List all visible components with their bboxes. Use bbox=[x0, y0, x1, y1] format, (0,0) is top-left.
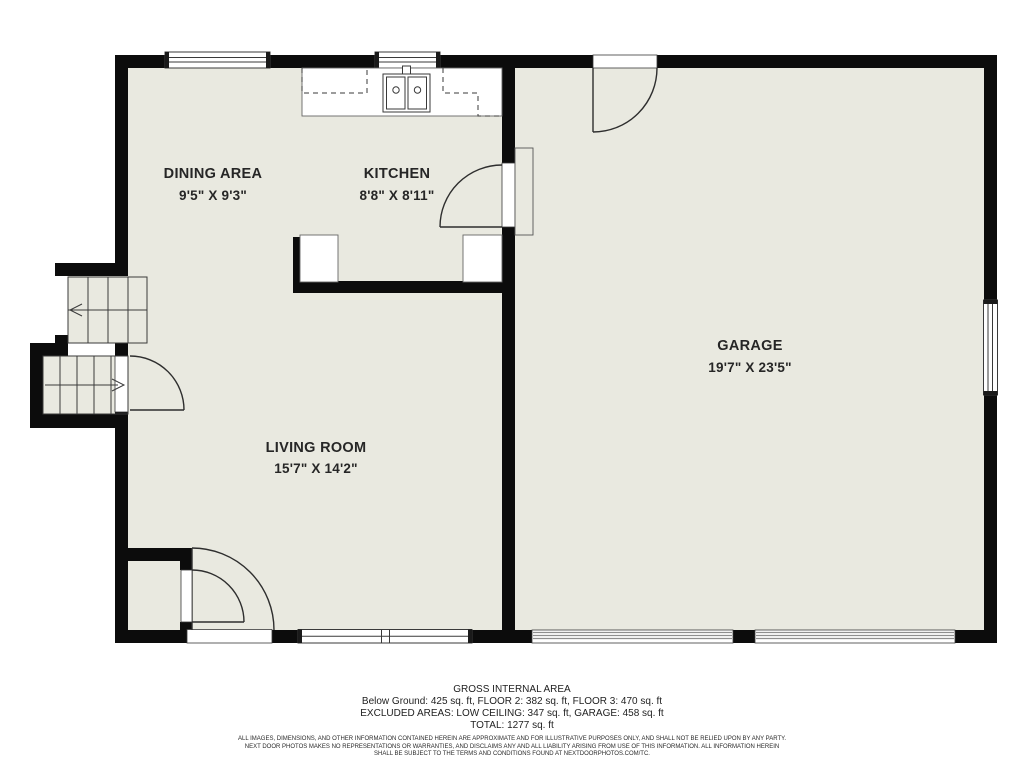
door-opening bbox=[593, 55, 657, 68]
room-label-living: LIVING ROOM bbox=[266, 440, 367, 456]
window-icon-garage-right bbox=[984, 300, 998, 395]
window-icon-dining bbox=[165, 52, 270, 68]
room-dims-garage: 19'7" X 23'5" bbox=[708, 360, 791, 375]
room-label-garage: GARAGE bbox=[717, 338, 782, 354]
room-label-dining: DINING AREA bbox=[164, 166, 263, 182]
wall-left-lower bbox=[115, 412, 128, 630]
footer: GROSS INTERNAL AREA Below Ground: 425 sq… bbox=[0, 684, 1024, 759]
wall-left-upper bbox=[115, 68, 128, 276]
sink-drain bbox=[393, 87, 399, 93]
wall-bottom-5 bbox=[955, 630, 997, 643]
window-frame bbox=[165, 52, 270, 68]
garage-divider-upper bbox=[502, 68, 515, 163]
room-dims-kitchen: 8'8" X 8'11" bbox=[360, 188, 435, 203]
appliance-left bbox=[300, 235, 338, 282]
utility-recess bbox=[515, 148, 533, 235]
footer-total-line: TOTAL: 1277 sq. ft bbox=[0, 720, 1024, 732]
floorplan-page: DINING AREA 9'5" X 9'3" KITCHEN 8'8" X 8… bbox=[0, 0, 1024, 768]
window-end-cap bbox=[468, 630, 472, 644]
window-end-cap bbox=[436, 52, 440, 68]
wall-top-2 bbox=[270, 55, 375, 68]
wall-top-1 bbox=[115, 55, 165, 68]
garage-door-icon-2 bbox=[755, 630, 955, 643]
window-end-cap bbox=[266, 52, 270, 68]
footer-areas-line: Below Ground: 425 sq. ft, FLOOR 2: 382 s… bbox=[0, 696, 1024, 708]
sink-drain bbox=[414, 87, 420, 93]
disclaimer-line-3: SHALL BE SUBJECT TO THE TERMS AND CONDIT… bbox=[0, 751, 1024, 759]
kitchen-bottom-wall bbox=[293, 281, 502, 293]
disclaimer-line-2: NEXT DOOR PHOTOS MAKES NO REPRESENTATION… bbox=[0, 744, 1024, 752]
stairwell-bottom-wall bbox=[30, 414, 128, 428]
garage-divider-lower bbox=[502, 227, 515, 630]
closet-top-wall bbox=[128, 548, 188, 561]
wall-bottom-1 bbox=[115, 630, 187, 643]
garage-door-icon-1 bbox=[532, 630, 733, 643]
footer-disclaimer: ALL IMAGES, DIMENSIONS, AND OTHER INFORM… bbox=[0, 736, 1024, 759]
wall-top-3 bbox=[440, 55, 593, 68]
footer-excluded-line: EXCLUDED AREAS: LOW CEILING: 347 sq. ft,… bbox=[0, 708, 1024, 720]
window-end-cap bbox=[298, 630, 302, 644]
window-end-cap bbox=[165, 52, 169, 68]
window-end-cap bbox=[375, 52, 379, 68]
main-floor bbox=[128, 68, 984, 630]
closet-right-wall-upper bbox=[180, 548, 192, 570]
window-end-cap bbox=[984, 391, 998, 395]
window-frame bbox=[984, 300, 998, 395]
floorplan-drawing: DINING AREA 9'5" X 9'3" KITCHEN 8'8" X 8… bbox=[0, 0, 1024, 768]
footer-title: GROSS INTERNAL AREA bbox=[0, 684, 1024, 696]
window-end-cap bbox=[984, 300, 998, 304]
door-threshold bbox=[187, 630, 272, 644]
stairwell-top-wall bbox=[55, 263, 128, 276]
appliance-right bbox=[463, 235, 502, 282]
disclaimer-line-1: ALL IMAGES, DIMENSIONS, AND OTHER INFORM… bbox=[0, 736, 1024, 744]
wall-bottom-3 bbox=[472, 630, 532, 643]
wall-bottom-4 bbox=[733, 630, 755, 643]
wall-top-4 bbox=[657, 55, 997, 68]
window-icon-living-bottom bbox=[298, 630, 472, 644]
room-dims-dining: 9'5" X 9'3" bbox=[179, 188, 247, 203]
wall-bottom-2 bbox=[272, 630, 298, 643]
door-opening bbox=[502, 163, 515, 227]
wall-left-stub bbox=[115, 343, 128, 356]
room-dims-living: 15'7" X 14'2" bbox=[274, 461, 357, 476]
room-label-kitchen: KITCHEN bbox=[364, 166, 431, 182]
door-opening bbox=[181, 570, 192, 622]
